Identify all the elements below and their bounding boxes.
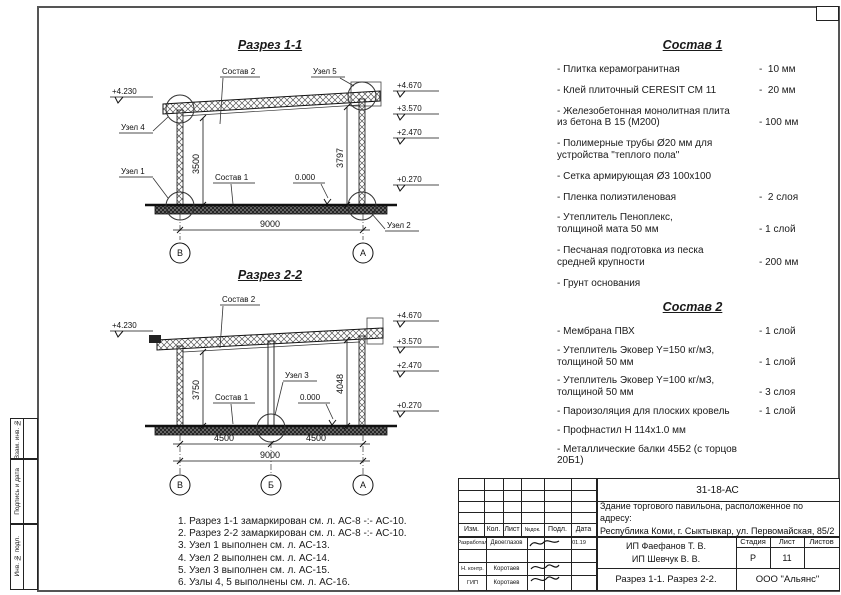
column-left: [177, 346, 183, 426]
stage-label: Стадия: [736, 536, 770, 547]
section1-drawing: +4.230 +4.670 +3.570 +2.470 +0.270 Сост: [95, 58, 450, 266]
svg-text:+4.670: +4.670: [397, 311, 422, 320]
svg-text:А: А: [360, 480, 366, 490]
elevation-left: +4.230: [110, 321, 153, 337]
label-uzel1: Узел 1: [119, 167, 168, 198]
sostav2-list: - Мембрана ПВХ- 1 слой - Утеплитель Эков…: [557, 326, 829, 474]
elevation-right-3: +2.470: [393, 361, 439, 377]
list-item: - Мембрана ПВХ- 1 слой: [557, 326, 829, 338]
list-item: - Утеплитель Пеноплекс, толщиной мата 50…: [557, 212, 829, 236]
roof-band: [157, 328, 383, 350]
svg-text:+3.570: +3.570: [397, 337, 422, 346]
signature: [527, 536, 562, 550]
list-item: - Пленка полиэтиленовая- 2 слоя: [557, 192, 829, 204]
label-uzel2: Узел 2: [372, 214, 419, 231]
section2-drawing: +4.230 +4.670 +3.570 +2.470 +0.270 Соста…: [95, 288, 450, 500]
svg-text:+4.230: +4.230: [112, 321, 137, 330]
list-item: - Металлические балки 45Б2 (с торцов 20Б…: [557, 444, 829, 468]
strip-podpis: Подпись и дата: [10, 458, 38, 525]
elevation-right-1: +4.670: [393, 311, 439, 327]
strip-podpis-label: Подпись и дата: [11, 459, 24, 524]
sostav2-title: Состав 2: [555, 300, 830, 314]
signature: [527, 561, 562, 590]
elevation-right-2: +3.570: [393, 337, 439, 353]
elevation-right-2: +3.570: [393, 104, 439, 120]
sostav1-title: Состав 1: [555, 38, 830, 52]
doc-code: 31-18-АС: [596, 479, 839, 501]
sheet-value: 11: [770, 547, 804, 568]
row-razrabotal-date: 01.19: [562, 537, 596, 549]
col-izm: Изм.: [459, 523, 484, 536]
note-line: 2. Разрез 2-2 замаркирован см. л. АС-8 -…: [178, 528, 448, 540]
col-list: Лист: [503, 523, 521, 536]
svg-text:Узел 3: Узел 3: [285, 371, 309, 380]
dim-rows: 4500 4500 9000: [173, 433, 370, 474]
object-description: Здание торгового павильона, расположенно…: [600, 501, 837, 536]
clients: ИП Фаефанов Т. В. ИП Шевчук В. В.: [596, 537, 736, 568]
axis-bubble-right: А: [353, 475, 373, 495]
axis-bubble-left: В: [170, 475, 190, 495]
strip-inv-label: Инв. № подл.: [11, 524, 24, 589]
sostav1-list: - Плитка керамогранитная- 10 мм - Клей п…: [557, 64, 829, 298]
list-item: - Утеплитель Эковер Y=150 кг/м3, толщино…: [557, 345, 829, 369]
row-razrabotal-name: Двоеглазов: [486, 537, 527, 549]
label-zero-elevation: 0.000: [298, 393, 336, 425]
row-nkontr: Н. контр.: [459, 562, 486, 575]
svg-text:9000: 9000: [260, 219, 280, 229]
svg-text:4500: 4500: [306, 433, 326, 443]
list-item: - Пароизоляция для плоских кровель- 1 сл…: [557, 406, 829, 418]
sheets-value: [804, 547, 839, 568]
list-item: - Профнастил Н 114х1.0 мм: [557, 425, 829, 437]
note-line: 3. Узел 1 выполнен см. л. АС-13.: [178, 540, 448, 552]
list-item: - Плитка керамогранитная- 10 мм: [557, 64, 829, 76]
list-item: - Песчаная подготовка из песка средней к…: [557, 245, 829, 269]
axis-bubble-left: В: [170, 243, 190, 263]
svg-text:3797: 3797: [335, 148, 345, 168]
col-data: Дата: [571, 523, 596, 536]
label-sostav2: Состав 2: [220, 67, 260, 124]
list-item: - Грунт основания: [557, 278, 829, 290]
format-stamp-box: [816, 6, 839, 21]
sheets-label: Листов: [804, 536, 839, 547]
dim-v-right: 3797: [335, 104, 350, 208]
svg-text:Узел 2: Узел 2: [387, 221, 411, 230]
row-razrabotal: Разработал: [459, 537, 486, 549]
svg-text:0.000: 0.000: [300, 393, 321, 402]
title-block: Изм. Кол. Лист №док. Подл. Дата Разработ…: [458, 478, 840, 591]
list-item: - Утеплитель Эковер Y=100 кг/м3, толщино…: [557, 375, 829, 399]
strip-vzam-label: Взам. инв. №: [11, 419, 24, 459]
label-zero-elevation: 0.000: [293, 173, 331, 204]
floor-slab: [155, 426, 387, 435]
elevation-right-1: +4.670: [393, 81, 439, 97]
floor-slab: [155, 205, 387, 214]
dim-v-right: 4048: [335, 337, 350, 429]
svg-text:0.000: 0.000: [295, 173, 316, 182]
sheet-label: Лист: [770, 536, 804, 547]
strip-vzam: Взам. инв. №: [10, 418, 38, 460]
stage-value: Р: [736, 547, 770, 568]
note-line: 1. Разрез 1-1 замаркирован см. л. АС-8 -…: [178, 516, 448, 528]
col-podl: Подл.: [544, 523, 571, 536]
list-item: - Сетка армирующая Ø3 100х100: [557, 171, 829, 183]
list-item: - Полимерные трубы Ø20 мм для устройства…: [557, 138, 829, 162]
label-sostav1: Состав 1: [213, 173, 255, 204]
section1-title: Разрез 1-1: [120, 38, 420, 52]
svg-text:+3.570: +3.570: [397, 104, 422, 113]
column-right: [359, 336, 365, 426]
column-left: [177, 110, 183, 205]
label-sostav1: Состав 1: [213, 393, 255, 424]
svg-text:Состав 2: Состав 2: [222, 295, 256, 304]
svg-text:4500: 4500: [214, 433, 234, 443]
svg-text:+2.470: +2.470: [397, 361, 422, 370]
elevation-right-4: +0.270: [393, 401, 439, 417]
axis-bubble-right: А: [353, 243, 373, 263]
svg-text:В: В: [177, 480, 183, 490]
svg-text:В: В: [177, 248, 183, 258]
column-right: [359, 99, 365, 205]
company: ООО "Альянс": [736, 568, 839, 590]
strip-inv: Инв. № подл.: [10, 523, 38, 590]
column-mid: [268, 341, 274, 426]
list-item: - Железобетонная монолитная плита из бет…: [557, 106, 829, 130]
svg-text:3500: 3500: [191, 154, 201, 174]
row-nkontr-name: Коротаев: [486, 562, 527, 575]
dim-v-left: 3500: [191, 115, 206, 208]
sheet-title: Разрез 1-1. Разрез 2-2.: [596, 568, 736, 590]
svg-text:Узел 4: Узел 4: [121, 123, 145, 132]
svg-text:4048: 4048: [335, 374, 345, 394]
drawing-sheet: Взам. инв. № Подпись и дата Инв. № подл.…: [0, 0, 841, 595]
svg-text:+4.230: +4.230: [112, 87, 137, 96]
note-line: 4. Узел 2 выполнен см. л. АС-14.: [178, 553, 448, 565]
svg-text:Состав 2: Состав 2: [222, 67, 256, 76]
elevation-right-4: +0.270: [393, 175, 439, 191]
notes-list: 1. Разрез 1-1 замаркирован см. л. АС-8 -…: [178, 516, 448, 589]
dim-width: 9000: [173, 214, 370, 240]
svg-text:+0.270: +0.270: [397, 175, 422, 184]
label-uzel4: Узел 4: [119, 117, 168, 133]
svg-text:Узел 1: Узел 1: [121, 167, 145, 176]
axis-bubble-mid: Б: [261, 475, 281, 495]
svg-text:+2.470: +2.470: [397, 128, 422, 137]
note-line: 5. Узел 3 выполнен см. л. АС-15.: [178, 565, 448, 577]
svg-text:А: А: [360, 248, 366, 258]
elevation-left: +4.230: [110, 87, 153, 103]
dim-v-left: 3750: [191, 349, 206, 429]
note-line: 6. Узлы 4, 5 выполнены см. л. АС-16.: [178, 577, 448, 589]
section2-title: Разрез 2-2: [120, 268, 420, 282]
svg-text:3750: 3750: [191, 380, 201, 400]
eave-end: [149, 335, 161, 343]
list-item: - Клей плиточный CERESIT СМ 11- 20 мм: [557, 85, 829, 97]
svg-text:Состав 1: Состав 1: [215, 173, 249, 182]
svg-text:Б: Б: [268, 480, 274, 490]
svg-text:Состав 1: Состав 1: [215, 393, 249, 402]
col-ndok: №док.: [521, 523, 544, 536]
svg-text:+0.270: +0.270: [397, 401, 422, 410]
svg-text:9000: 9000: [260, 450, 280, 460]
row-gip-name: Коротаев: [486, 575, 527, 590]
svg-text:+4.670: +4.670: [397, 81, 422, 90]
row-gip: ГИП: [459, 575, 486, 590]
elevation-right-3: +2.470: [393, 128, 439, 144]
svg-text:Узел 5: Узел 5: [313, 67, 337, 76]
col-kol: Кол.: [484, 523, 503, 536]
label-uzel5: Узел 5: [311, 67, 354, 86]
